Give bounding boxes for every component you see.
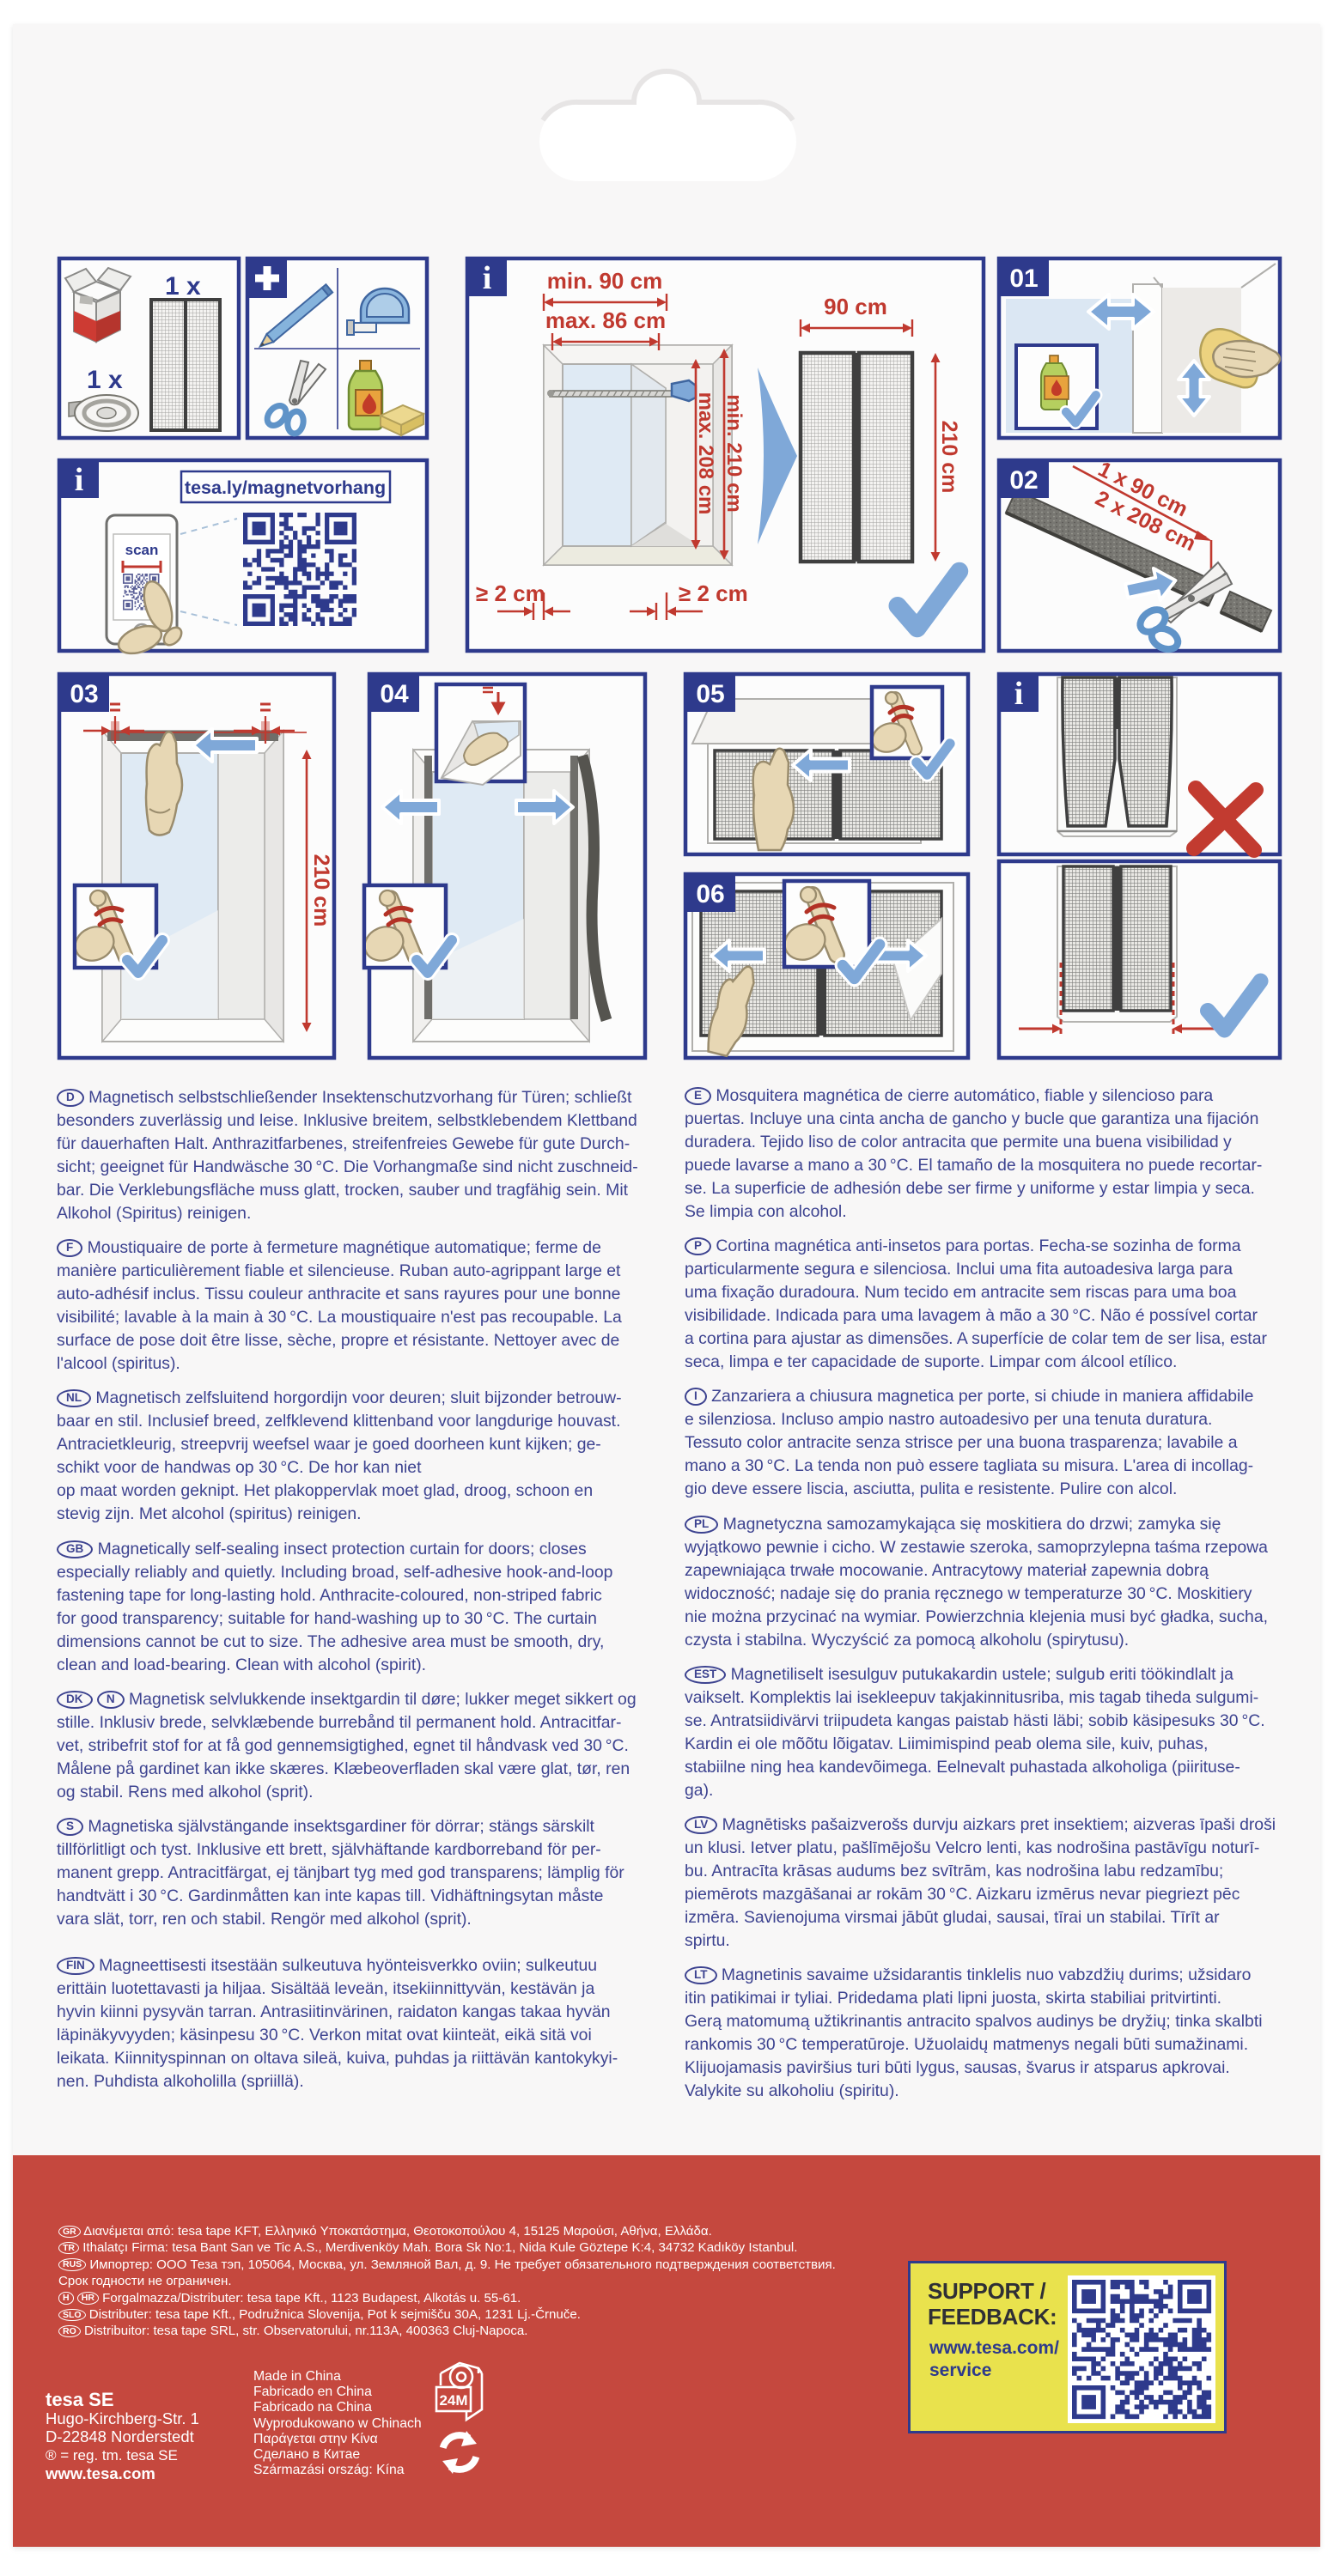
svg-text:i: i [75, 462, 84, 498]
svg-text:01: 01 [1009, 264, 1038, 293]
svg-text:min. 90 cm: min. 90 cm [547, 268, 662, 294]
svg-text:scan: scan [125, 542, 159, 558]
svg-text:≥ 2 cm: ≥ 2 cm [476, 580, 545, 606]
svg-text:03: 03 [70, 680, 98, 708]
svg-text:tesa.ly/magnetvorhang: tesa.ly/magnetvorhang [185, 477, 386, 498]
svg-text:max. 86 cm: max. 86 cm [545, 307, 666, 333]
svg-text:24M: 24M [439, 2392, 467, 2409]
svg-text:1 x: 1 x [165, 272, 201, 301]
svg-text:04: 04 [380, 680, 409, 708]
svg-text:02: 02 [1009, 466, 1038, 495]
svg-text:210 cm: 210 cm [937, 421, 961, 494]
svg-text:05: 05 [696, 680, 724, 708]
svg-text:i: i [1014, 676, 1024, 712]
svg-text:≥ 2 cm: ≥ 2 cm [679, 580, 748, 606]
svg-text:90 cm: 90 cm [824, 294, 887, 319]
svg-text:06: 06 [696, 880, 724, 908]
svg-text:210 cm: 210 cm [309, 854, 333, 927]
svg-text:1 x: 1 x [87, 366, 123, 394]
svg-text:max. 208 cm: max. 208 cm [694, 392, 717, 515]
svg-text:min. 210 cm: min. 210 cm [722, 394, 746, 512]
svg-text:i: i [483, 260, 492, 296]
